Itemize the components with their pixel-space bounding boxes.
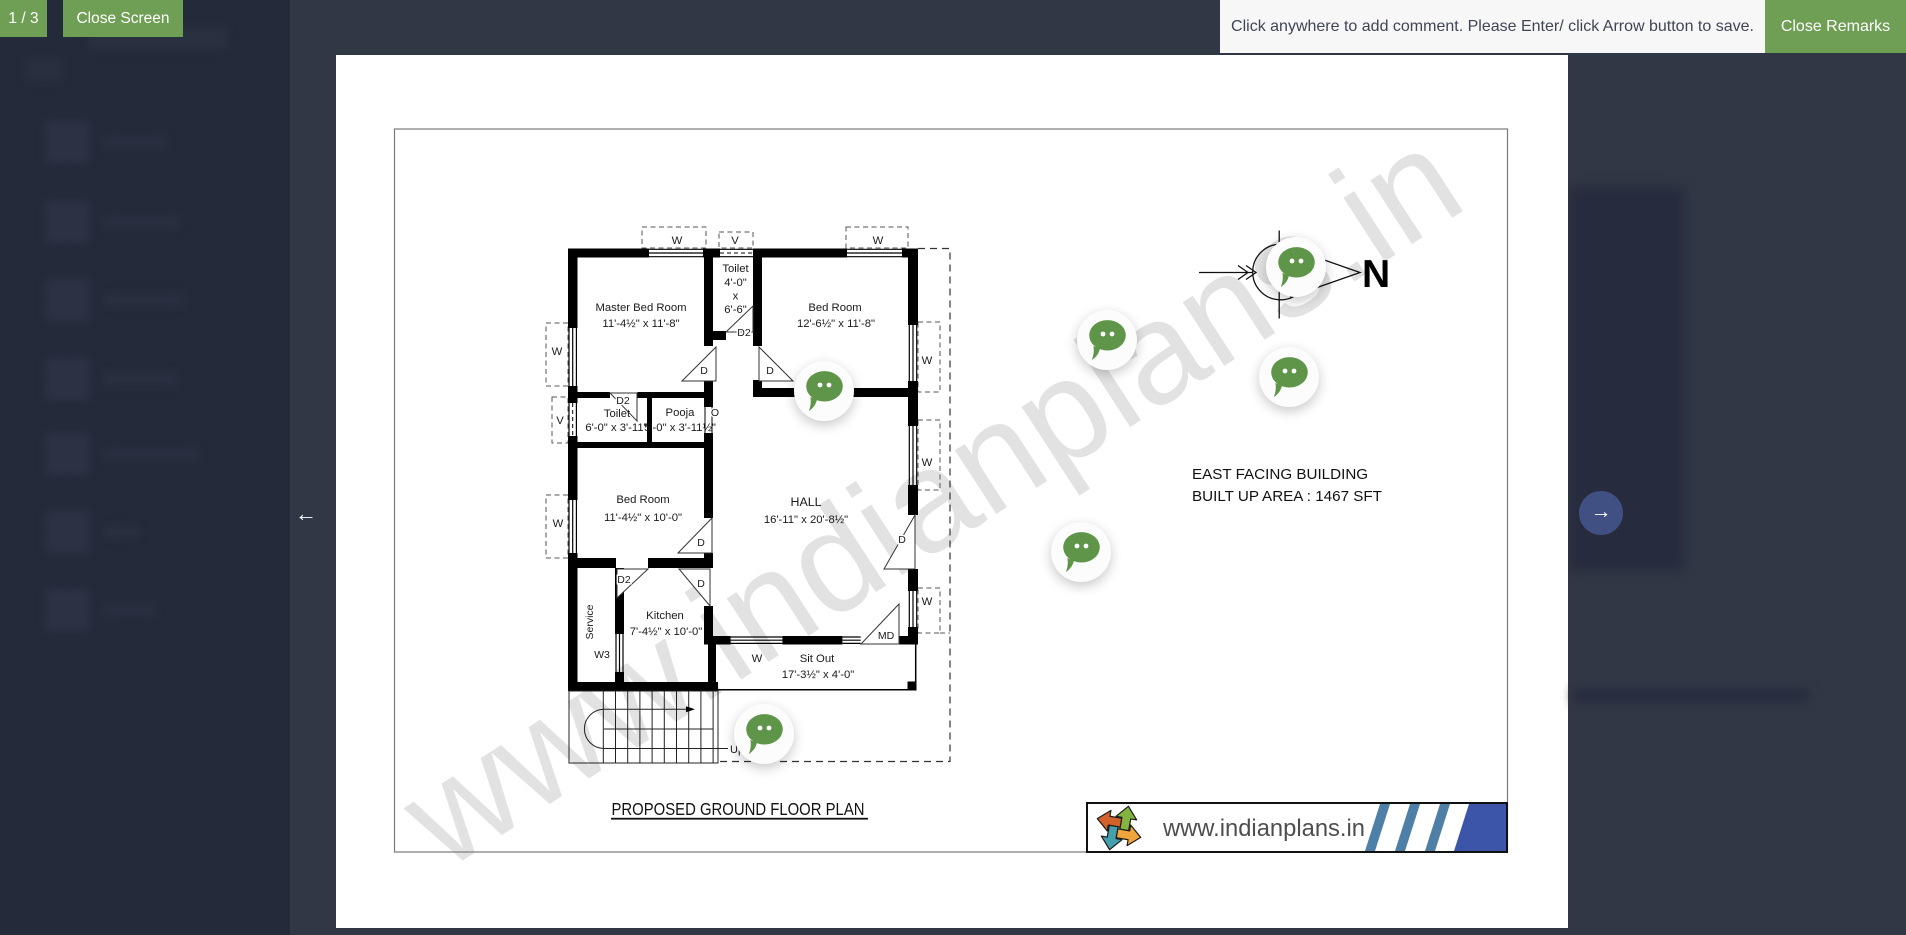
svg-text:Master Bed Room: Master Bed Room — [595, 302, 686, 314]
svg-text:Sit Out: Sit Out — [800, 653, 835, 665]
svg-text:Bed Room: Bed Room — [808, 302, 861, 314]
svg-text:Pooja: Pooja — [666, 407, 696, 419]
svg-text:D: D — [898, 534, 906, 546]
svg-text:N: N — [1362, 253, 1390, 296]
svg-text:HALL: HALL — [791, 495, 822, 509]
svg-text:12'-6½" x 11'-8": 12'-6½" x 11'-8" — [797, 318, 875, 330]
svg-text:Toilet: Toilet — [604, 408, 631, 420]
svg-text:EAST FACING BUILDING: EAST FACING BUILDING — [1192, 466, 1368, 483]
svg-text:11'-4½" x 11'-8": 11'-4½" x 11'-8" — [602, 318, 679, 330]
svg-text:D2: D2 — [737, 327, 751, 339]
svg-text:www.indianplans.in: www.indianplans.in — [1162, 815, 1365, 842]
svg-text:4'-0": 4'-0" — [724, 277, 747, 289]
svg-text:D: D — [700, 365, 708, 377]
svg-text:V: V — [556, 415, 564, 427]
svg-text:V: V — [731, 235, 739, 247]
svg-text:D: D — [697, 578, 705, 590]
svg-text:Service: Service — [584, 604, 596, 639]
svg-text:W: W — [922, 355, 933, 367]
svg-text:W: W — [552, 346, 563, 358]
svg-text:5'-0" x 3'-11½": 5'-0" x 3'-11½" — [644, 422, 716, 434]
svg-text:16'-11" x 20'-8½": 16'-11" x 20'-8½" — [764, 514, 848, 526]
svg-text:D: D — [697, 537, 705, 549]
svg-text:MD: MD — [878, 630, 895, 642]
svg-text:Bed Room: Bed Room — [616, 494, 669, 506]
svg-text:x: x — [733, 291, 739, 303]
svg-text:7'-4½" x 10'-0": 7'-4½" x 10'-0" — [630, 626, 703, 638]
svg-text:D2: D2 — [616, 395, 630, 407]
svg-text:W: W — [553, 518, 564, 530]
svg-text:6'-0" x 3'-11": 6'-0" x 3'-11" — [585, 422, 647, 434]
svg-text:W: W — [672, 235, 683, 247]
svg-text:17'-3½" x 4'-0": 17'-3½" x 4'-0" — [782, 669, 855, 681]
svg-text:D2: D2 — [617, 574, 631, 586]
svg-text:11'-4½" x 10'-0": 11'-4½" x 10'-0" — [604, 512, 682, 524]
svg-text:O: O — [711, 407, 719, 419]
svg-text:Toilet: Toilet — [722, 263, 749, 275]
svg-text:PROPOSED GROUND FLOOR PLAN: PROPOSED GROUND FLOOR PLAN — [612, 799, 865, 819]
svg-text:D: D — [766, 365, 774, 377]
svg-text:W3: W3 — [594, 649, 610, 661]
svg-text:W: W — [873, 235, 884, 247]
svg-text:W: W — [752, 653, 763, 665]
svg-text:6'-6": 6'-6" — [724, 304, 747, 316]
svg-text:W: W — [922, 596, 933, 608]
svg-text:Kitchen: Kitchen — [646, 610, 684, 622]
svg-text:W: W — [922, 457, 933, 469]
svg-text:BUILT UP AREA : 1467 SFT: BUILT UP AREA : 1467 SFT — [1192, 488, 1382, 505]
